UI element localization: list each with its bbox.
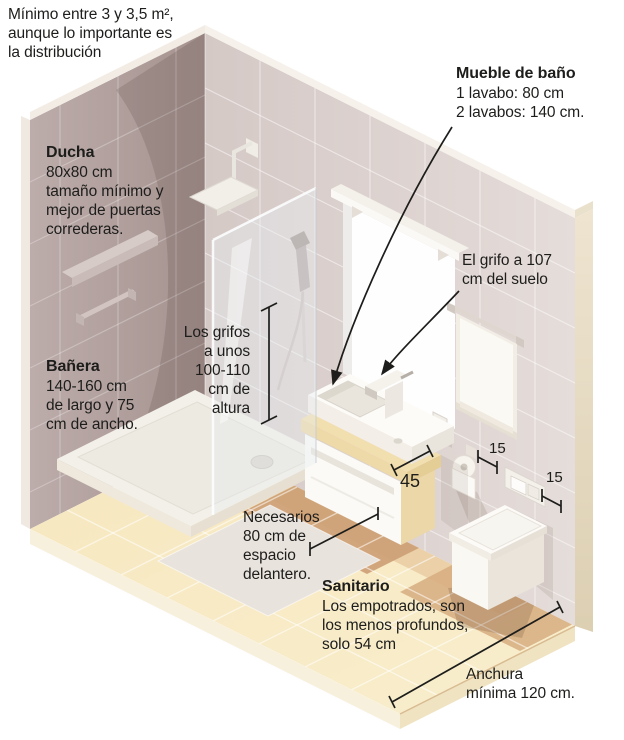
annotation-grifos-altura: Los grifos a unos 100-110 cm de altura [156,323,250,418]
bathroom-infographic: Mínimo entre 3 y 3,5 m², aunque lo impor… [0,0,624,740]
annotation-title: Bañera [46,357,138,376]
text-line: Anchura [466,665,575,684]
annotation-banera: Bañera 140-160 cm de largo y 75 cm de an… [46,357,138,434]
annotation-title: Ducha [46,143,163,162]
annotation-title: Sanitario [322,577,468,596]
text-line: solo 54 cm [322,635,468,654]
text-line: mínima 120 cm. [466,684,575,703]
dim-label-15-plate: 15 [546,468,563,487]
text-line: Los grifos [156,323,250,342]
text-line: 2 lavabos: 140 cm. [456,103,584,122]
annotation-anchura: Anchura mínima 120 cm. [466,665,575,703]
text-line: aunque lo importante es [8,24,174,43]
text-line: a unos [156,342,250,361]
text-line: tamaño mínimo y [46,182,163,201]
annotation-grifo-suelo: El grifo a 107 cm del suelo [462,251,552,289]
annotation-title: Mueble de baño [456,64,584,83]
text-line: Mínimo entre 3 y 3,5 m², [8,5,174,24]
text-line: 100-110 [156,361,250,380]
text-line: altura [156,399,250,418]
text-line: 140-160 cm [46,377,138,396]
annotation-ducha: Ducha 80x80 cm tamaño mínimo y mejor de … [46,143,163,239]
text-line: 1 lavabo: 80 cm [456,84,584,103]
sink-drain [394,438,403,444]
text-line: delantero. [243,565,320,584]
dim-label-15-paper: 15 [489,439,506,458]
text-line: correderas. [46,220,163,239]
text-line: Los empotrados, son [322,597,468,616]
left-wall-front-edge [21,116,30,529]
text-line: mejor de puertas [46,201,163,220]
text-line: 80x80 cm [46,163,163,182]
dim-label-45: 45 [400,472,420,491]
text-line: El grifo a 107 [462,251,552,270]
text-line: cm de ancho. [46,415,138,434]
text-line: cm del suelo [462,270,552,289]
annotation-espacio: Necesarios 80 cm de espacio delantero. [243,508,320,584]
annotation-mueble: Mueble de baño 1 lavabo: 80 cm 2 lavabos… [456,64,584,122]
text-line: 80 cm de [243,527,320,546]
annotation-sanitario: Sanitario Los empotrados, son los menos … [322,577,468,654]
annotation-intro: Mínimo entre 3 y 3,5 m², aunque lo impor… [8,5,174,62]
right-wall-outer-edge [575,209,593,632]
text-line: la distribución [8,43,174,62]
text-line: de largo y 75 [46,396,138,415]
text-line: Necesarios [243,508,320,527]
text-line: cm de [156,380,250,399]
text-line: espacio [243,546,320,565]
text-line: los menos profundos, [322,616,468,635]
